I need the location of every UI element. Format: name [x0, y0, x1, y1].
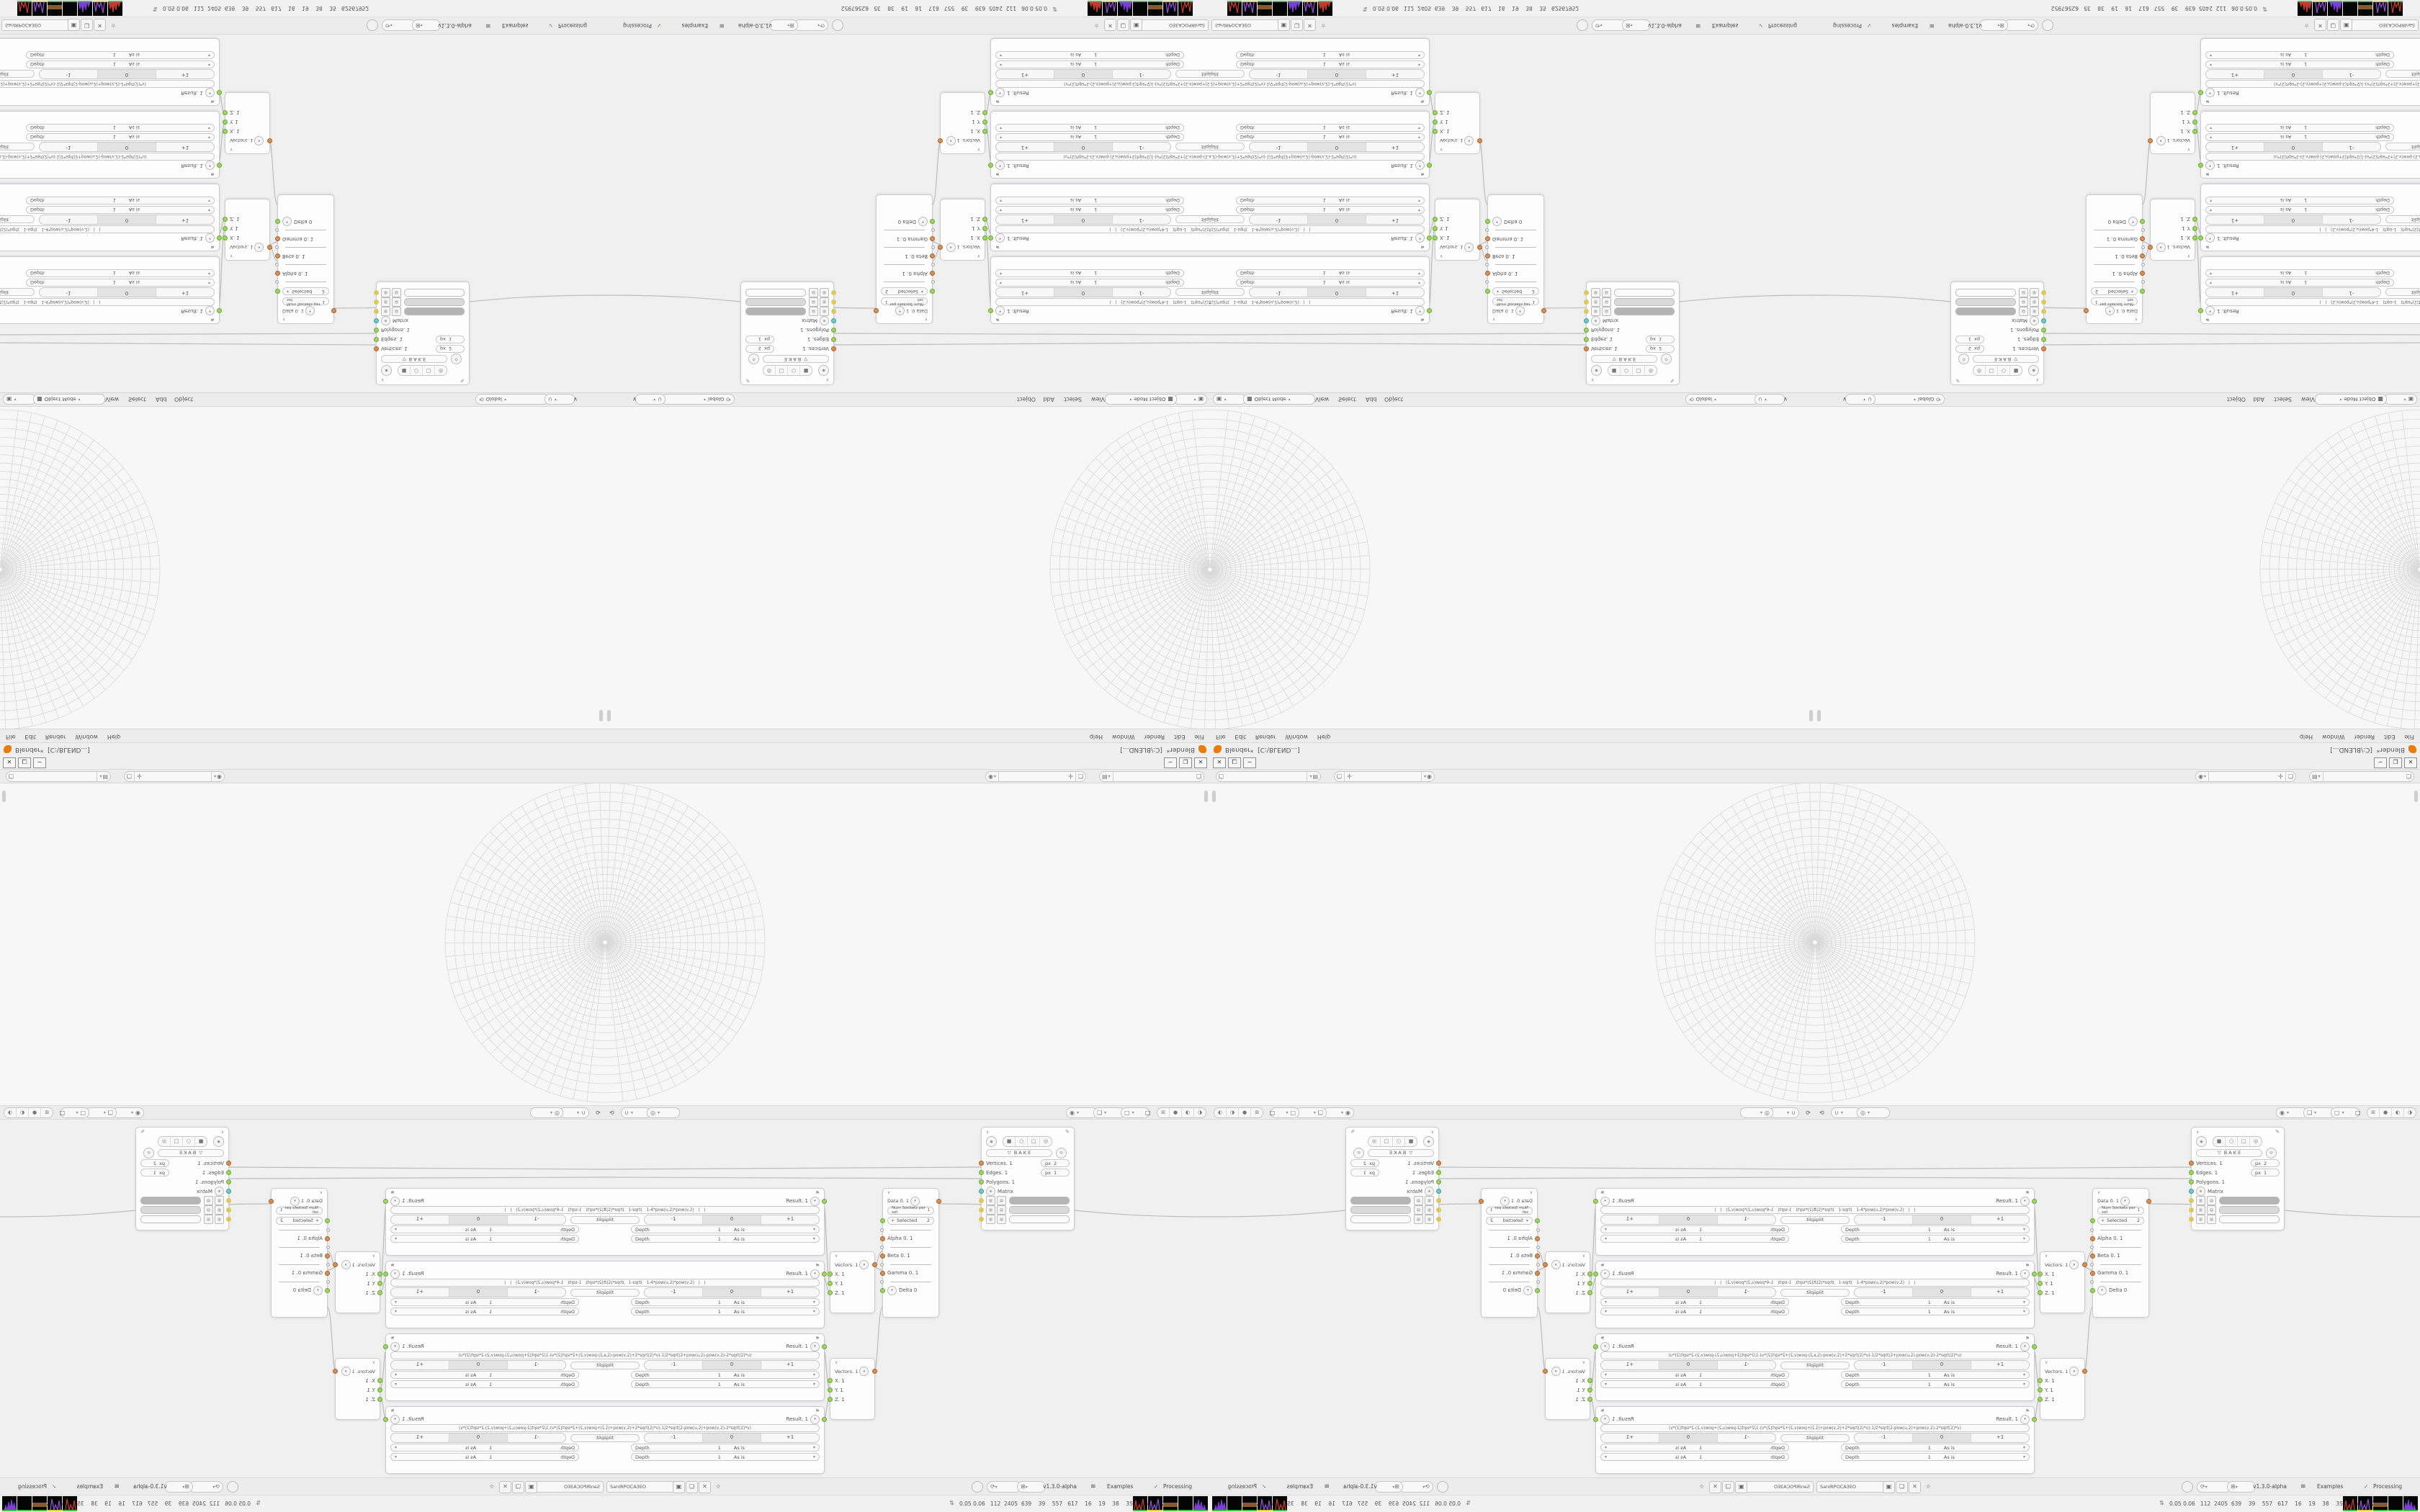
scene-selector[interactable]: ◉▾ ✛ ❏	[985, 771, 1086, 782]
uvw-range-widget[interactable]: -10+1	[390, 1287, 566, 1297]
dropdown-circle-icon[interactable]: ▾	[1600, 1197, 1610, 1206]
menu-file[interactable]: File	[1195, 734, 1204, 740]
y-input-socket[interactable]	[828, 1387, 833, 1392]
depth-dropdown[interactable]: Depth1As is▾	[1841, 1298, 2030, 1306]
depth-dropdown[interactable]: Depth1As is▾	[1841, 1371, 2030, 1379]
edge-color-socket[interactable]	[2041, 300, 2046, 305]
swatch-grid-icon[interactable]: ▥	[2030, 307, 2039, 316]
edge-color-swatch[interactable]	[404, 298, 465, 306]
tree-name-datablock[interactable]: SanIRPOCA3EO	[2348, 19, 2419, 31]
split-button[interactable]: Split	[1780, 1434, 1815, 1442]
vert-color-socket[interactable]	[374, 309, 379, 314]
snap-widget[interactable]: ∪▾	[559, 1107, 589, 1118]
depth-dropdown[interactable]: Depth1As is▾	[1841, 1225, 2030, 1233]
y-input-socket[interactable]	[2192, 120, 2197, 125]
snap-dropdown[interactable]: ∪▾	[544, 394, 575, 405]
examples-menu[interactable]: Examples	[1892, 22, 1918, 29]
swatch-bars-icon[interactable]: ▤	[1602, 307, 1611, 316]
dropdown-circle-icon[interactable]: ▾	[810, 1269, 820, 1279]
data-output-socket[interactable]	[269, 1199, 274, 1204]
dropdown-circle-icon[interactable]: ▾	[282, 217, 292, 227]
taskbar-thumbnail[interactable]	[32, 1, 47, 16]
split-button[interactable]: Split	[1780, 1216, 1815, 1224]
x-input-socket[interactable]	[828, 1272, 833, 1277]
dropdown-circle-icon[interactable]: ▾	[995, 161, 1005, 171]
uvw-range-widget[interactable]: -10+1	[1854, 1433, 2030, 1443]
formula-node[interactable]: ⚑Result. 1▾(u*v)/u*sqrt(2)*sqrt( 1-sqrt(…	[1595, 1261, 1815, 1328]
formula-input[interactable]: (u*v)/u*sqrt(2)*sqrt( 1-sqrt( 1-4*pow(u,…	[605, 1281, 706, 1285]
vertices-input-socket[interactable]	[2041, 346, 2046, 351]
fake-user-shield-icon[interactable]: ▣	[673, 1481, 685, 1493]
taskbar-thumbnails[interactable]	[1212, 1496, 1287, 1511]
xray-toggle-icon[interactable]: □	[2355, 1110, 2361, 1116]
collapse-icon[interactable]: ∨	[230, 147, 233, 152]
edge-color-swatch[interactable]	[1614, 298, 1675, 306]
menu-window[interactable]: Window	[2322, 734, 2345, 740]
copy-datablock-icon[interactable]: ❏	[1291, 19, 1303, 31]
formula-node[interactable]: ⚑Result. 1▾(u*v)/u*sqrt(2)*sqrt( 1-sqrt(…	[385, 1261, 605, 1328]
alpha-input-socket[interactable]	[2090, 1236, 2095, 1241]
vectors-output-socket[interactable]	[2082, 1369, 2087, 1374]
bake-button[interactable]: ▽B A K E	[1973, 356, 2039, 364]
formula-input[interactable]: (u*v)/u*sqrt(2)*sqrt( 1-sqrt( 1-4*pow(u,…	[1109, 228, 1210, 232]
y-input-socket[interactable]	[1587, 1281, 1592, 1286]
dropdown-circle-icon[interactable]: ▾	[390, 1342, 400, 1351]
formula-input[interactable]: rt(2+pow(u,2)-pow(v,2)+2*sqrt(2)*u)-1/2*…	[2274, 155, 2420, 159]
dropdown-circle-icon[interactable]: ▾	[205, 161, 215, 171]
depth-dropdown[interactable]: Depth1As is▾	[390, 1308, 579, 1315]
split-button[interactable]: Split	[1175, 143, 1210, 151]
z-input-socket[interactable]	[223, 110, 228, 115]
edit-pencil-icon[interactable]: ✎	[1065, 1129, 1070, 1135]
dropdown-circle-icon[interactable]: ▾	[2069, 1367, 2079, 1376]
x-input-socket[interactable]	[982, 129, 987, 134]
view-menu[interactable]: View	[1091, 396, 1105, 402]
y-input-socket[interactable]	[982, 120, 987, 125]
scene-name-input[interactable]	[999, 773, 1066, 781]
proportional-widget[interactable]: ◎▾	[530, 1107, 563, 1118]
formula-input[interactable]: rt(2-pow(u,2)+pow(v,2)+2*sqrt(2)*v)-1/2*…	[605, 1426, 751, 1431]
vector-in-node[interactable]: ∨ Vectors. 1▾ X. 1 Y. 1 Z. 1	[830, 1251, 875, 1313]
taskbar-thumbnail[interactable]	[1133, 1496, 1147, 1511]
vectors-output-socket[interactable]	[2148, 245, 2153, 250]
dropdown-circle-icon[interactable]: ▾	[2120, 1197, 2130, 1206]
edge-color-socket[interactable]	[979, 1207, 984, 1212]
result-output-socket[interactable]	[383, 1199, 388, 1204]
edit-pencil-icon[interactable]: ✎	[140, 1129, 145, 1135]
menu-render[interactable]: Render	[2354, 734, 2375, 740]
mode-dropdown[interactable]: ■Object Mode▾	[33, 394, 105, 405]
formula-node[interactable]: ⚑Result. 1▾(u*v)/v*sqrt(2)*sqrt( 1-sqrt(…	[605, 1188, 825, 1256]
viewer-draw-node[interactable]: ∨✎ ◉ ■ ○ □ ◎ ▽B A K E◎ Vertices. 1px2 Ed…	[2191, 1127, 2285, 1230]
header-chevron-icon[interactable]: ∨	[632, 396, 637, 402]
dropdown-circle-icon[interactable]: ▾	[2156, 243, 2166, 252]
dropdown-circle-icon[interactable]: ▾	[859, 1367, 869, 1376]
taskbar-thumbnail[interactable]	[48, 1496, 62, 1511]
dropdown-circle-icon[interactable]: ▾	[1551, 1367, 1561, 1376]
vectors-output-socket[interactable]	[2148, 138, 2153, 143]
collapse-icon[interactable]: ∨	[320, 1190, 323, 1195]
mode-dropdown[interactable]: ■Object Mode▾	[2315, 394, 2387, 405]
delta-input-socket[interactable]	[2090, 1288, 2095, 1293]
bake-button[interactable]: ▽B A K E	[158, 1149, 224, 1157]
z-input-socket[interactable]	[1587, 1397, 1592, 1402]
tool-circle-icon[interactable]	[1437, 1481, 1448, 1493]
edges-input-socket[interactable]	[1436, 1170, 1441, 1175]
matrix-input-socket[interactable]	[2189, 1189, 2194, 1194]
dropdown-circle-icon[interactable]: ▾	[1523, 1286, 1533, 1295]
bake-button[interactable]: ▽B A K E	[381, 356, 447, 364]
viewport-scroll-handle[interactable]	[1204, 791, 1208, 802]
edge-color-socket[interactable]	[1584, 300, 1589, 305]
uvw-range-widget[interactable]: -10+1	[1854, 1215, 2030, 1225]
taskbar-thumbnail[interactable]	[63, 1496, 77, 1511]
proportional-widget[interactable]: ◎▾	[1740, 1107, 1773, 1118]
matrix-circle-icon[interactable]: ⊕	[1425, 1187, 1434, 1196]
menu-file[interactable]: File	[6, 734, 15, 740]
id-circle-icon[interactable]: ◎	[1661, 354, 1672, 365]
data-output-socket[interactable]	[2084, 309, 2089, 314]
edit-pencil-icon[interactable]: ✎	[1350, 1129, 1355, 1135]
overlays-dropdown[interactable]: ❏▾	[1295, 1107, 1327, 1118]
editor-type-button[interactable]: ▣▾	[1213, 394, 1246, 405]
depth-dropdown[interactable]: Depth1As is▾	[1600, 1298, 1789, 1306]
taskbar-thumbnail[interactable]	[2328, 1, 2342, 16]
vector-in-node[interactable]: ∨ Vectors. 1▾ X. 1 Y. 1 Z. 1	[2040, 1251, 2085, 1313]
formula-node[interactable]: ⚑Result. 1▾rt(2-pow(u,2)+pow(v,2)+2*sqrt…	[2200, 38, 2420, 106]
node-editor-canvas[interactable]: ∨ Vectors. 1▾ X. 1 Y. 1 Z. 1 ∨ Vectors. …	[605, 35, 1210, 392]
split-button[interactable]: Split	[0, 71, 35, 78]
taskbar-thumbnail[interactable]	[2343, 1, 2357, 16]
uvw-range-widget[interactable]: -10+1	[1600, 1215, 1776, 1225]
dna-icon[interactable]: ≋	[485, 22, 491, 29]
view-menu[interactable]: View	[105, 396, 119, 402]
taskbar-thumbnails[interactable]	[1088, 1, 1193, 16]
depth-dropdown[interactable]: Depth1As is▾	[26, 60, 215, 68]
vertex-color-swatch[interactable]	[745, 307, 806, 315]
id-circle-icon[interactable]: ◎	[748, 354, 759, 365]
matrix-input-socket[interactable]	[831, 318, 836, 323]
refresh-dropdown[interactable]: ⟳▾	[987, 1481, 1021, 1493]
collapse-icon[interactable]: ∨	[372, 1360, 375, 1365]
edit-pencil-icon[interactable]: ✎	[2275, 1129, 2280, 1135]
depth-dropdown[interactable]: Depth1As is▾	[390, 1371, 579, 1379]
processing-toggle[interactable]: Processing	[1833, 22, 1862, 29]
viewport-3d[interactable]	[0, 407, 605, 729]
dna-icon[interactable]: ≋	[1324, 1483, 1330, 1490]
menu-edit[interactable]: Edit	[24, 734, 36, 740]
split-button[interactable]: Split	[2385, 289, 2420, 297]
matrix-circle-icon[interactable]: ⊕	[381, 316, 390, 325]
depth-dropdown[interactable]: Depth1As is▾	[995, 279, 1184, 287]
uvw-range-widget[interactable]: -10+1	[1600, 1433, 1776, 1443]
z-input-socket[interactable]	[223, 217, 228, 222]
data-node[interactable]: ∨ Data 0. 1▾ Num Sockets per set1 ▾Selec…	[277, 194, 334, 324]
uvw-range-widget[interactable]: -10+1	[644, 1433, 820, 1443]
processing-toggle[interactable]: Processing	[1228, 1483, 1257, 1490]
vertex-color-swatch[interactable]	[1350, 1197, 1411, 1205]
selected-input-socket[interactable]	[1485, 289, 1490, 294]
dropdown-circle-icon[interactable]: ▾	[205, 89, 215, 98]
display-mode-buttons[interactable]: ■ ○ □ ◎	[2213, 1136, 2262, 1147]
edge-color-swatch[interactable]	[1009, 1206, 1070, 1214]
viewport-3d[interactable]	[1815, 783, 2420, 1105]
menu-help[interactable]: Help	[1090, 734, 1103, 740]
result-output-socket[interactable]	[383, 1417, 388, 1422]
collapse-icon[interactable]: ∨	[2187, 253, 2190, 258]
uvw-range-widget[interactable]: -10+1	[995, 69, 1171, 79]
taskbar-thumbnails[interactable]	[2343, 1496, 2418, 1511]
dna-icon[interactable]: ≋	[2300, 1483, 2306, 1490]
minimize-button[interactable]: ─	[33, 757, 46, 768]
taskbar-thumbnail[interactable]	[1242, 1, 1257, 16]
processing-toggle[interactable]: Processing	[1768, 22, 1797, 29]
node-editor-canvas[interactable]: ∨ Vectors. 1▾ X. 1 Y. 1 Z. 1 ∨ Vectors. …	[0, 1120, 605, 1477]
vert-color-socket[interactable]	[226, 1198, 231, 1203]
viewport-3d[interactable]	[1210, 783, 1815, 1105]
processing-toggle[interactable]: Processing	[1163, 1483, 1192, 1490]
uvw-range-widget[interactable]: -10+1	[2205, 215, 2381, 225]
layout-dropdown[interactable]: ⊞▾	[769, 19, 798, 31]
node-editor-canvas[interactable]: ∨ Vectors. 1▾ X. 1 Y. 1 Z. 1 ∨ Vectors. …	[0, 35, 605, 392]
depth-dropdown[interactable]: Depth1As is▾	[995, 133, 1184, 141]
copy-datablock-icon[interactable]: ❏	[512, 1481, 524, 1493]
bake-button[interactable]: ▽B A K E	[986, 1149, 1052, 1157]
close-button[interactable]: ✕	[1194, 757, 1207, 768]
vectors-output-socket[interactable]	[1543, 1262, 1548, 1267]
split-button[interactable]: Split	[1780, 1362, 1815, 1369]
swatch-bars-icon[interactable]: ▤	[2207, 1196, 2216, 1205]
depth-dropdown[interactable]: Depth1As is▾	[390, 1235, 579, 1243]
beta-input-socket[interactable]	[275, 254, 280, 259]
editor-type-button[interactable]: ▣▾	[2384, 394, 2417, 405]
z-input-socket[interactable]	[1433, 217, 1438, 222]
result-output-socket[interactable]	[2198, 236, 2203, 241]
face-color-swatch[interactable]	[404, 289, 465, 297]
y-input-socket[interactable]	[1587, 1387, 1592, 1392]
depth-dropdown[interactable]: Depth1As is▾	[1600, 1380, 1789, 1388]
face-color-socket[interactable]	[831, 290, 836, 295]
formula-input[interactable]: (u*v)/v*sqrt(2)*sqrt( 1-sqrt( 1-4*pow(u,…	[605, 1208, 705, 1212]
taskbar-thumbnail[interactable]	[1303, 1, 1317, 16]
face-color-socket[interactable]	[226, 1217, 231, 1222]
pin-star-icon[interactable]: ☆	[1094, 22, 1099, 29]
dropdown-circle-icon[interactable]: ▾	[390, 1197, 400, 1206]
result-output-socket[interactable]	[988, 309, 993, 314]
dropdown-circle-icon[interactable]: ▾	[1464, 243, 1474, 252]
depth-dropdown[interactable]: Depth1As is▾	[26, 197, 215, 204]
uvw-range-widget[interactable]: -10+1	[39, 287, 215, 297]
unlink-datablock-icon[interactable]: ✕	[1104, 19, 1116, 31]
formula-node[interactable]: ⚑Result. 1▾rt(2+pow(u,2)-pow(v,2)+2*sqrt…	[0, 111, 220, 179]
select-menu[interactable]: Select	[2274, 396, 2292, 402]
object-menu[interactable]: Object	[1384, 396, 1403, 402]
swatch-grid-icon[interactable]: ▥	[1591, 307, 1600, 316]
depth-dropdown[interactable]: Depth1As is▾	[1600, 1371, 1789, 1379]
taskbar-thumbnails[interactable]	[2, 1496, 77, 1511]
formula-node[interactable]: ⚑Result. 1▾rt(2+pow(u,2)-pow(v,2)+2*sqrt…	[2200, 111, 2420, 179]
vert-color-socket[interactable]	[2041, 309, 2046, 314]
formula-input[interactable]: rt(2+pow(u,2)-pow(v,2)+2*sqrt(2)*u)-1/2*…	[0, 155, 146, 159]
depth-dropdown[interactable]: Depth1As is▾	[390, 1380, 579, 1388]
tool-circle-icon[interactable]	[2042, 19, 2053, 31]
y-input-socket[interactable]	[377, 1387, 382, 1392]
dropdown-circle-icon[interactable]: ▾	[313, 1286, 323, 1295]
viewlayer-selector[interactable]: ▤▾ ❏	[1099, 771, 1204, 782]
pin-icon[interactable]: ✛	[1066, 772, 1076, 781]
unlink-datablock-icon[interactable]: ✕	[2314, 19, 2326, 31]
polygons-input-socket[interactable]	[2189, 1179, 2194, 1184]
uvw-range-widget[interactable]: -10+1	[1249, 69, 1425, 79]
processing-toggle[interactable]: Processing	[2373, 1483, 2402, 1490]
vertices-input-socket[interactable]	[1436, 1161, 1441, 1166]
matrix-circle-icon[interactable]: ⊕	[820, 316, 829, 325]
formula-node[interactable]: ⚑Result. 1▾rt(2-pow(u,2)+pow(v,2)+2*sqrt…	[1210, 38, 1430, 106]
orientation-dropdown[interactable]: ⟲Global▾	[661, 394, 735, 405]
dropdown-circle-icon[interactable]: ▾	[2069, 1260, 2079, 1269]
split-button[interactable]: Split	[0, 143, 35, 151]
result-output-socket[interactable]	[822, 1417, 827, 1422]
eye-toggle-icon[interactable]: ◉	[1591, 365, 1602, 376]
depth-dropdown[interactable]: Depth1As is▾	[26, 206, 215, 214]
id-circle-icon[interactable]: ◎	[2266, 1148, 2277, 1158]
dropdown-circle-icon[interactable]: ▾	[205, 307, 215, 316]
node-editor-canvas[interactable]: ∨ Vectors. 1▾ X. 1 Y. 1 Z. 1 ∨ Vectors. …	[1815, 35, 2420, 392]
node-editor-canvas[interactable]: ∨ Vectors. 1▾ X. 1 Y. 1 Z. 1 ∨ Vectors. …	[605, 1120, 1210, 1477]
formula-node[interactable]: ⚑Result. 1▾(u*v)/v*sqrt(2)*sqrt( 1-sqrt(…	[1815, 1188, 2035, 1256]
gamma-input-socket[interactable]	[275, 237, 280, 242]
object-menu[interactable]: Object	[2227, 396, 2246, 402]
formula-node[interactable]: ⚑Result. 1▾rt(2-pow(u,2)+pow(v,2)+2*sqrt…	[1595, 1406, 1815, 1474]
examples-menu[interactable]: Examples	[502, 22, 528, 29]
polygons-input-socket[interactable]	[374, 328, 379, 333]
uvw-range-widget[interactable]: -10+1	[39, 215, 215, 225]
dropdown-circle-icon[interactable]: ▾	[2020, 1269, 2030, 1279]
dropdown-circle-icon[interactable]: ▾	[2128, 217, 2138, 227]
edge-color-swatch[interactable]	[140, 1206, 201, 1214]
taskbar-thumbnail[interactable]	[1163, 1, 1178, 16]
formula-input[interactable]: rt(2+pow(u,2)-pow(v,2)+2*sqrt(2)*u)-1/2*…	[1210, 155, 1356, 159]
formula-node[interactable]: ⚑Result. 1▾(u*v)/u*sqrt(2)*sqrt( 1-sqrt(…	[990, 184, 1210, 251]
formula-input[interactable]: (u*v)/u*sqrt(2)*sqrt( 1-sqrt( 1-4*pow(u,…	[0, 228, 101, 232]
edge-color-swatch[interactable]	[1350, 1206, 1411, 1214]
proportional-widget[interactable]: ◎▾	[1857, 1107, 1890, 1118]
taskbar-thumbnail[interactable]	[1148, 1496, 1162, 1511]
editor-type-button[interactable]: ▣▾	[1174, 394, 1207, 405]
vector-in-node[interactable]: ∨ Vectors. 1▾ X. 1 Y. 1 Z. 1	[2150, 199, 2195, 261]
taskbar-thumbnail[interactable]	[1227, 1, 1242, 16]
vertex-color-swatch[interactable]	[1614, 307, 1675, 315]
maximize-button[interactable]: ❐	[18, 757, 31, 768]
menu-help[interactable]: Help	[107, 734, 120, 740]
delta-input-socket[interactable]	[1535, 1288, 1540, 1293]
dropdown-circle-icon[interactable]: ▾	[1464, 136, 1474, 145]
refresh-dropdown[interactable]: ⟳▾	[1399, 1481, 1433, 1493]
dropdown-circle-icon[interactable]: ▾	[1415, 161, 1425, 171]
viewer-draw-node[interactable]: ∨✎ ◉ ■ ○ □ ◎ ▽B A K E◎ Vertices. 1px2 Ed…	[135, 1127, 229, 1230]
depth-dropdown[interactable]: Depth1As is▾	[2205, 124, 2394, 132]
eye-toggle-icon[interactable]: ◉	[1423, 1136, 1434, 1147]
vector-in-node[interactable]: ∨ Vectors. 1▾ X. 1 Y. 1 Z. 1	[940, 92, 985, 154]
tree-name-datablock[interactable]: SanIRPOCA3EO	[533, 1481, 604, 1493]
polygons-input-socket[interactable]	[2041, 328, 2046, 333]
scene-selector[interactable]: ◉▾ ✛ ❏	[124, 771, 225, 782]
split-button[interactable]: Split	[2385, 143, 2420, 151]
formula-input[interactable]: (u*v)/u*sqrt(2)*sqrt( 1-sqrt( 1-4*pow(u,…	[1815, 1281, 1916, 1285]
formula-input[interactable]: rt(2-pow(u,2)+pow(v,2)+2*sqrt(2)*v)-1/2*…	[1815, 1426, 1961, 1431]
depth-dropdown[interactable]: Depth1As is▾	[1600, 1453, 1789, 1461]
result-output-socket[interactable]	[1593, 1272, 1598, 1277]
swatch-bars-icon[interactable]: ▤	[1414, 1196, 1423, 1205]
swatch-grid-icon[interactable]: ▥	[215, 1196, 224, 1205]
tool-circle-icon[interactable]	[2182, 1481, 2193, 1493]
taskbar-thumbnails[interactable]	[1133, 1496, 1208, 1511]
edge-color-socket[interactable]	[226, 1207, 231, 1212]
taskbar-thumbnail[interactable]	[1227, 1496, 1242, 1511]
gamma-input-socket[interactable]	[325, 1271, 330, 1276]
x-input-socket[interactable]	[377, 1378, 382, 1383]
matrix-circle-icon[interactable]: ⊕	[1591, 316, 1600, 325]
formula-node[interactable]: ⚑Result. 1▾(u*v)/v*sqrt(2)*sqrt( 1-sqrt(…	[0, 256, 220, 324]
taskbar-thumbnail[interactable]	[1148, 1, 1162, 16]
viewer-draw-node[interactable]: ∨✎ ◉ ■ ○ □ ◎ ▽B A K E◎ Vertices. 1px2 Ed…	[1345, 1127, 1439, 1230]
vertex-color-swatch[interactable]	[2219, 1197, 2280, 1205]
result-output-socket[interactable]	[1593, 1199, 1598, 1204]
layout-dropdown[interactable]: ⊞▾	[1017, 1481, 1046, 1493]
result-output-socket[interactable]	[988, 91, 993, 96]
collapse-icon[interactable]: ∨	[381, 378, 384, 383]
alpha-input-socket[interactable]	[1485, 271, 1490, 276]
matrix-circle-icon[interactable]: ⊕	[2196, 1187, 2205, 1196]
result-output-socket[interactable]	[822, 1344, 827, 1349]
orientation-dropdown[interactable]: ⟲Global▾	[1685, 394, 1759, 405]
split-button[interactable]: Split	[605, 1434, 640, 1442]
y-input-socket[interactable]	[377, 1281, 382, 1286]
depth-dropdown[interactable]: Depth1As is▾	[26, 133, 215, 141]
refresh-dropdown[interactable]: ⟳▾	[1592, 19, 1626, 31]
collapse-icon[interactable]: ∨	[372, 1254, 375, 1259]
y-input-socket[interactable]	[2038, 1387, 2043, 1392]
swatch-bars-icon[interactable]: ▤	[997, 1196, 1006, 1205]
split-button[interactable]: Split	[1815, 1289, 1850, 1297]
unlink-datablock-icon[interactable]: ✕	[699, 1481, 711, 1493]
tool-circle-icon[interactable]	[832, 19, 843, 31]
viewlayer-selector[interactable]: ▤▾ ❏	[2309, 771, 2414, 782]
pin-star-icon[interactable]: ☆	[489, 1483, 494, 1490]
tree-name-datablock[interactable]: SanIRPOCA3EO	[1816, 1481, 1887, 1493]
dna-icon[interactable]: ≋	[1695, 22, 1701, 29]
split-button[interactable]: Split	[1175, 289, 1210, 297]
collapse-icon[interactable]: ∨	[2036, 378, 2039, 383]
layout-dropdown[interactable]: ⊞▾	[1374, 1481, 1403, 1493]
copy-datablock-icon[interactable]: ❏	[1722, 1481, 1734, 1493]
collapse-icon[interactable]: ∨	[2187, 147, 2190, 152]
face-color-swatch[interactable]	[140, 1215, 201, 1223]
edge-color-socket[interactable]	[374, 300, 379, 305]
edges-input-socket[interactable]	[2041, 337, 2046, 342]
vectors-output-socket[interactable]	[267, 138, 272, 143]
depth-dropdown[interactable]: Depth1As is▾	[995, 206, 1184, 214]
split-button[interactable]: Split	[2385, 71, 2420, 78]
examples-menu[interactable]: Examples	[682, 22, 708, 29]
depth-dropdown[interactable]: Depth1As is▾	[631, 1453, 820, 1461]
formula-node[interactable]: ⚑Result. 1▾rt(2+pow(u,2)-pow(v,2)+2*sqrt…	[990, 111, 1210, 179]
node-editor-canvas[interactable]: ∨ Vectors. 1▾ X. 1 Y. 1 Z. 1 ∨ Vectors. …	[1210, 1120, 1815, 1477]
dropdown-circle-icon[interactable]: ▾	[1415, 234, 1425, 243]
snap-dropdown[interactable]: ∪▾	[1754, 394, 1785, 405]
depth-dropdown[interactable]: Depth1As is▾	[390, 1298, 579, 1306]
xray-toggle-icon[interactable]: □	[59, 1110, 65, 1116]
